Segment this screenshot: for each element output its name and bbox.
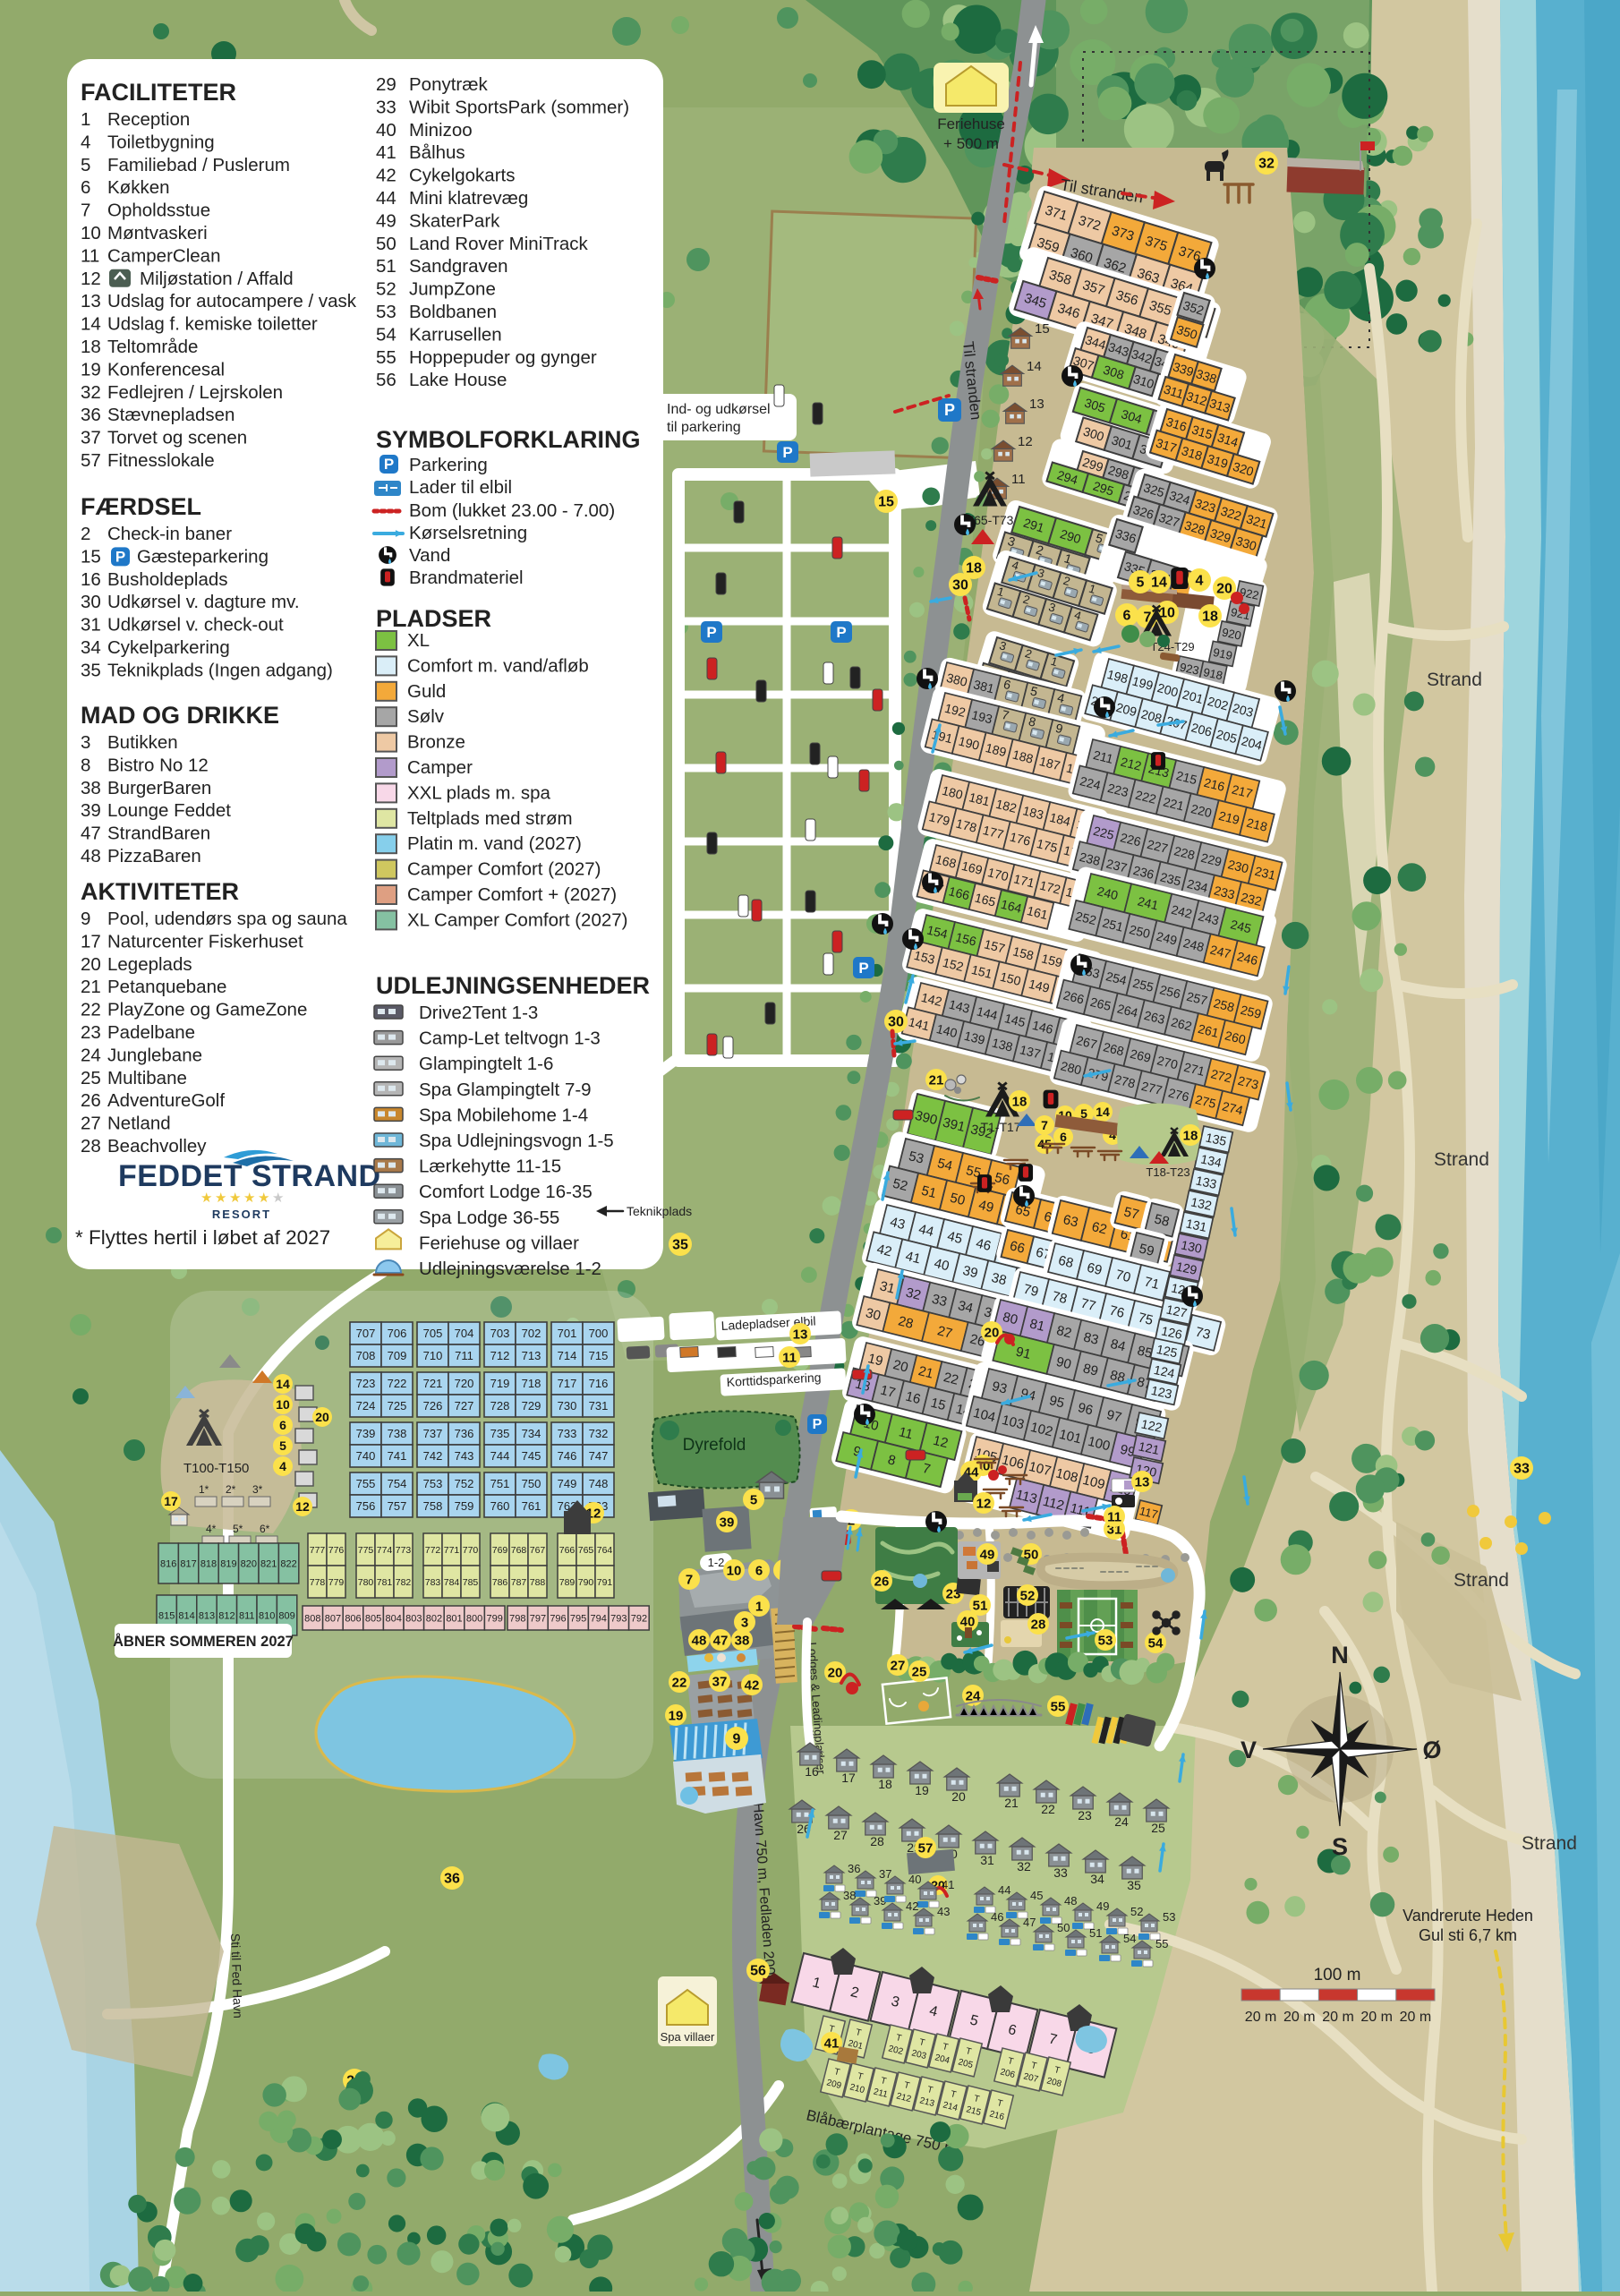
svg-text:18: 18	[966, 561, 982, 576]
svg-text:1: 1	[755, 1599, 763, 1614]
svg-text:744: 744	[490, 1449, 510, 1463]
svg-text:53: 53	[1163, 1910, 1175, 1924]
svg-text:754: 754	[388, 1477, 407, 1490]
svg-text:BurgerBaren: BurgerBaren	[107, 778, 211, 798]
svg-text:741: 741	[388, 1449, 407, 1463]
svg-text:54: 54	[1148, 1635, 1164, 1651]
svg-text:721: 721	[423, 1377, 443, 1390]
svg-text:701: 701	[558, 1327, 577, 1340]
svg-text:P: P	[384, 456, 394, 473]
svg-text:751: 751	[490, 1477, 510, 1490]
svg-text:821: 821	[260, 1558, 277, 1569]
svg-text:21: 21	[81, 977, 101, 997]
svg-text:SkaterPark: SkaterPark	[409, 210, 500, 231]
svg-text:Glampingtelt 1-6: Glampingtelt 1-6	[419, 1054, 553, 1074]
svg-text:39: 39	[720, 1515, 735, 1530]
svg-text:20 m: 20 m	[1283, 2010, 1316, 2025]
svg-text:Boldbanen: Boldbanen	[409, 302, 497, 322]
svg-text:34: 34	[1090, 1872, 1104, 1886]
svg-text:53: 53	[1098, 1633, 1113, 1648]
svg-text:805: 805	[365, 1613, 381, 1624]
svg-text:P: P	[813, 1417, 823, 1432]
svg-text:6: 6	[1060, 1130, 1067, 1144]
svg-text:Lærkehytte 11-15: Lærkehytte 11-15	[419, 1157, 561, 1177]
svg-text:733: 733	[558, 1427, 577, 1440]
svg-text:780: 780	[358, 1577, 374, 1588]
svg-text:Brandmateriel: Brandmateriel	[409, 568, 524, 588]
svg-text:745: 745	[522, 1449, 541, 1463]
svg-text:3*: 3*	[252, 1483, 263, 1496]
svg-text:P: P	[944, 401, 955, 419]
svg-text:Spa Glampingtelt 7-9: Spa Glampingtelt 7-9	[419, 1080, 592, 1100]
svg-text:713: 713	[522, 1349, 541, 1362]
svg-text:719: 719	[490, 1377, 510, 1390]
svg-text:786: 786	[492, 1577, 508, 1588]
svg-text:2*: 2*	[226, 1483, 236, 1496]
svg-text:★: ★	[243, 1191, 255, 1206]
svg-text:1: 1	[81, 109, 90, 130]
svg-text:29: 29	[376, 74, 396, 95]
svg-text:17: 17	[81, 931, 101, 952]
svg-text:774: 774	[377, 1545, 393, 1556]
svg-text:CamperClean: CamperClean	[107, 245, 220, 266]
svg-text:T100-T150: T100-T150	[183, 1461, 249, 1476]
svg-text:Strand: Strand	[1434, 1149, 1489, 1170]
svg-text:Opholdsstue: Opholdsstue	[107, 201, 210, 221]
svg-text:13: 13	[81, 291, 101, 312]
svg-text:772: 772	[425, 1545, 441, 1556]
svg-text:20 m: 20 m	[1400, 2010, 1432, 2025]
svg-text:770: 770	[463, 1545, 479, 1556]
svg-text:23: 23	[1078, 1808, 1092, 1822]
svg-text:765: 765	[578, 1545, 594, 1556]
svg-text:706: 706	[388, 1327, 407, 1340]
svg-text:766: 766	[559, 1545, 576, 1556]
svg-text:14: 14	[81, 314, 101, 335]
svg-text:Gul sti 6,7 km: Gul sti 6,7 km	[1419, 1926, 1517, 1944]
svg-text:T18-T23: T18-T23	[1146, 1165, 1189, 1179]
svg-text:759: 759	[455, 1499, 474, 1513]
svg-text:4: 4	[279, 1459, 286, 1473]
svg-text:P: P	[706, 624, 716, 641]
svg-text:8: 8	[81, 755, 90, 775]
svg-text:47: 47	[1023, 1916, 1036, 1929]
svg-text:724: 724	[356, 1399, 376, 1413]
svg-text:Beachvolley: Beachvolley	[107, 1136, 207, 1157]
svg-text:7: 7	[81, 201, 90, 221]
svg-text:48: 48	[81, 846, 101, 866]
svg-text:32: 32	[1258, 157, 1275, 172]
svg-text:Vand: Vand	[409, 545, 450, 566]
svg-text:5: 5	[279, 1438, 286, 1453]
svg-text:25: 25	[1151, 1821, 1165, 1835]
svg-text:725: 725	[388, 1399, 407, 1413]
svg-text:707: 707	[356, 1327, 376, 1340]
svg-text:★: ★	[200, 1191, 212, 1206]
svg-text:Multibane: Multibane	[107, 1068, 187, 1088]
svg-text:20: 20	[81, 954, 101, 975]
svg-text:48: 48	[1064, 1894, 1077, 1908]
svg-text:796: 796	[550, 1613, 566, 1624]
svg-text:30: 30	[81, 592, 101, 612]
svg-text:820: 820	[241, 1558, 257, 1569]
svg-text:38: 38	[735, 1633, 750, 1648]
svg-text:41: 41	[942, 1878, 954, 1891]
svg-text:771: 771	[444, 1545, 460, 1556]
svg-text:21: 21	[1004, 1796, 1019, 1810]
svg-text:720: 720	[455, 1377, 474, 1390]
svg-text:Naturcenter Fiskerhuset: Naturcenter Fiskerhuset	[107, 931, 303, 952]
svg-text:46: 46	[991, 1910, 1003, 1924]
svg-text:52: 52	[376, 279, 396, 300]
svg-text:35: 35	[1127, 1878, 1141, 1892]
svg-text:784: 784	[444, 1577, 460, 1588]
svg-text:13: 13	[793, 1327, 808, 1342]
svg-text:5*: 5*	[233, 1523, 243, 1535]
svg-text:Familiebad / Puslerum: Familiebad / Puslerum	[107, 155, 290, 175]
svg-text:783: 783	[425, 1577, 441, 1588]
svg-text:Bålhus: Bålhus	[409, 142, 465, 163]
svg-text:Udslag for autocampere / vask: Udslag for autocampere / vask	[107, 291, 357, 312]
svg-text:798: 798	[509, 1613, 525, 1624]
svg-text:795: 795	[570, 1613, 586, 1624]
svg-text:PizzaBaren: PizzaBaren	[107, 846, 201, 866]
svg-text:4: 4	[81, 132, 90, 152]
svg-text:Busholdeplads: Busholdeplads	[107, 569, 228, 590]
svg-text:709: 709	[388, 1349, 407, 1362]
svg-text:26: 26	[81, 1090, 101, 1111]
svg-text:Dyrefold: Dyrefold	[683, 1436, 746, 1455]
svg-text:14: 14	[276, 1377, 290, 1391]
svg-text:Parkering: Parkering	[409, 455, 488, 475]
svg-text:743: 743	[455, 1449, 474, 1463]
svg-text:11: 11	[1011, 472, 1026, 487]
svg-text:Camper Comfort (2027): Camper Comfort (2027)	[407, 859, 601, 880]
svg-text:4: 4	[1196, 574, 1204, 589]
svg-text:748: 748	[589, 1477, 609, 1490]
svg-text:P: P	[836, 624, 846, 641]
svg-text:26: 26	[874, 1574, 890, 1589]
svg-text:Teknikplads: Teknikplads	[627, 1204, 692, 1218]
svg-text:28: 28	[81, 1136, 101, 1157]
svg-text:764: 764	[597, 1545, 613, 1556]
svg-text:20: 20	[1216, 582, 1232, 597]
svg-text:Padelbane: Padelbane	[107, 1022, 195, 1043]
svg-text:2: 2	[81, 524, 90, 544]
svg-text:738: 738	[388, 1427, 407, 1440]
svg-text:49: 49	[980, 1547, 995, 1562]
svg-text:Pool, udendørs spa og sauna: Pool, udendørs spa og sauna	[107, 909, 347, 929]
svg-text:740: 740	[356, 1449, 376, 1463]
svg-text:40: 40	[908, 1873, 921, 1886]
svg-text:N: N	[1331, 1642, 1349, 1669]
svg-text:Legeplads: Legeplads	[107, 954, 192, 975]
svg-text:803: 803	[405, 1613, 422, 1624]
svg-text:Platin m. vand (2027): Platin m. vand (2027)	[407, 833, 582, 854]
svg-text:39: 39	[81, 800, 101, 821]
svg-text:XL Camper Comfort (2027): XL Camper Comfort (2027)	[407, 909, 627, 930]
svg-text:3: 3	[81, 732, 90, 753]
svg-text:50: 50	[1057, 1921, 1070, 1934]
svg-text:JumpZone: JumpZone	[409, 279, 496, 300]
svg-text:Feriehuse og villaer: Feriehuse og villaer	[419, 1233, 579, 1253]
svg-text:51: 51	[973, 1598, 988, 1613]
svg-text:779: 779	[328, 1577, 345, 1588]
svg-text:702: 702	[522, 1327, 541, 1340]
svg-text:Butikken: Butikken	[107, 732, 178, 753]
svg-text:791: 791	[597, 1577, 613, 1588]
svg-text:RESORT: RESORT	[212, 1208, 271, 1221]
svg-text:776: 776	[328, 1545, 345, 1556]
svg-text:6: 6	[279, 1418, 286, 1432]
svg-text:767: 767	[530, 1545, 546, 1556]
svg-text:49: 49	[1096, 1899, 1109, 1913]
svg-text:57: 57	[81, 450, 101, 471]
svg-text:28: 28	[1031, 1617, 1046, 1632]
svg-text:50: 50	[376, 234, 396, 254]
svg-text:6: 6	[81, 177, 90, 198]
svg-text:Udkørsel v. check-out: Udkørsel v. check-out	[107, 615, 284, 636]
svg-text:FÆRDSEL: FÆRDSEL	[81, 493, 201, 520]
svg-text:20: 20	[828, 1665, 843, 1680]
svg-text:Bronze: Bronze	[407, 732, 465, 753]
svg-text:19: 19	[669, 1708, 684, 1723]
svg-text:760: 760	[490, 1499, 510, 1513]
svg-text:808: 808	[304, 1613, 320, 1624]
svg-text:Bistro No 12: Bistro No 12	[107, 755, 209, 775]
svg-text:742: 742	[423, 1449, 443, 1463]
svg-text:41: 41	[824, 2036, 840, 2051]
svg-text:Sølv: Sølv	[407, 706, 445, 727]
svg-text:24: 24	[1114, 1814, 1129, 1829]
svg-text:17: 17	[841, 1771, 856, 1785]
svg-text:Camper Comfort + (2027): Camper Comfort + (2027)	[407, 884, 617, 905]
svg-text:7: 7	[686, 1572, 693, 1587]
svg-text:30: 30	[952, 578, 968, 593]
svg-text:731: 731	[589, 1399, 609, 1413]
svg-text:27: 27	[833, 1828, 848, 1842]
svg-text:20 m: 20 m	[1245, 2010, 1277, 2025]
svg-text:Gæsteparkering: Gæsteparkering	[137, 546, 269, 567]
svg-text:775: 775	[358, 1545, 374, 1556]
svg-text:818: 818	[200, 1558, 217, 1569]
svg-text:6*: 6*	[260, 1523, 270, 1535]
svg-text:12: 12	[1018, 434, 1033, 449]
svg-text:Feriehuse: Feriehuse	[937, 115, 1005, 132]
svg-text:Kørselsretning: Kørselsretning	[409, 523, 527, 543]
svg-text:Hoppepuder og gynger: Hoppepuder og gynger	[409, 347, 597, 368]
svg-text:12: 12	[976, 1496, 992, 1511]
svg-text:Fitnesslokale: Fitnesslokale	[107, 450, 215, 471]
svg-text:45: 45	[1030, 1889, 1043, 1902]
svg-text:55: 55	[376, 347, 396, 368]
svg-text:52: 52	[1130, 1905, 1143, 1918]
svg-text:42: 42	[376, 166, 396, 186]
svg-text:42: 42	[906, 1899, 918, 1913]
svg-text:756: 756	[356, 1499, 376, 1513]
svg-text:10: 10	[81, 223, 101, 243]
svg-text:716: 716	[589, 1377, 609, 1390]
svg-text:XL: XL	[407, 630, 430, 651]
svg-text:752: 752	[455, 1477, 474, 1490]
svg-text:43: 43	[937, 1905, 950, 1918]
svg-text:Karrusellen: Karrusellen	[409, 324, 502, 345]
svg-text:712: 712	[490, 1349, 510, 1362]
svg-text:FACILITETER: FACILITETER	[81, 79, 236, 106]
svg-text:Køkken: Køkken	[107, 177, 170, 198]
svg-text:781: 781	[377, 1577, 393, 1588]
svg-text:Wibit SportsPark (sommer): Wibit SportsPark (sommer)	[409, 97, 629, 117]
svg-text:793: 793	[610, 1613, 627, 1624]
svg-text:Minizoo: Minizoo	[409, 120, 473, 141]
svg-text:718: 718	[522, 1377, 541, 1390]
svg-text:35: 35	[81, 660, 101, 680]
svg-text:6: 6	[755, 1563, 763, 1578]
svg-text:Comfort m. vand/afløb: Comfort m. vand/afløb	[407, 655, 589, 676]
svg-text:57: 57	[918, 1840, 934, 1856]
svg-text:710: 710	[423, 1349, 443, 1362]
svg-text:Junglebane: Junglebane	[107, 1045, 202, 1065]
svg-text:37: 37	[879, 1867, 891, 1881]
svg-text:22: 22	[672, 1675, 687, 1690]
svg-text:100 m: 100 m	[1314, 1966, 1361, 1984]
svg-text:700: 700	[589, 1327, 609, 1340]
svg-text:51: 51	[1089, 1926, 1102, 1940]
svg-text:747: 747	[589, 1449, 609, 1463]
svg-text:12: 12	[81, 269, 101, 289]
svg-text:25: 25	[912, 1664, 927, 1679]
svg-text:Mini klatrevæg: Mini klatrevæg	[409, 188, 528, 209]
svg-text:35: 35	[672, 1238, 688, 1253]
svg-text:20: 20	[315, 1410, 329, 1424]
svg-text:★: ★	[272, 1191, 284, 1206]
svg-text:32: 32	[1017, 1859, 1031, 1874]
svg-text:769: 769	[492, 1545, 508, 1556]
svg-text:14: 14	[1096, 1105, 1110, 1119]
svg-text:739: 739	[356, 1427, 376, 1440]
svg-text:13: 13	[1135, 1474, 1150, 1489]
svg-text:788: 788	[530, 1577, 546, 1588]
svg-text:Ø: Ø	[1422, 1737, 1441, 1763]
svg-text:Spa villaer: Spa villaer	[661, 2030, 715, 2044]
svg-text:730: 730	[558, 1399, 577, 1413]
svg-text:27: 27	[891, 1658, 906, 1673]
svg-text:10: 10	[276, 1397, 290, 1412]
svg-text:735: 735	[490, 1427, 510, 1440]
svg-text:MAD OG DRIKKE: MAD OG DRIKKE	[81, 702, 279, 729]
svg-text:Spa Lodge 36-55: Spa Lodge 36-55	[419, 1208, 559, 1228]
svg-text:789: 789	[559, 1577, 576, 1588]
svg-text:56: 56	[376, 370, 396, 390]
svg-text:Strand: Strand	[1427, 670, 1482, 690]
svg-text:47: 47	[81, 824, 101, 844]
svg-text:ÅBNER SOMMEREN 2027: ÅBNER SOMMEREN 2027	[113, 1633, 294, 1650]
svg-text:31: 31	[81, 615, 101, 636]
svg-text:819: 819	[220, 1558, 236, 1569]
svg-text:714: 714	[558, 1349, 577, 1362]
svg-text:722: 722	[388, 1377, 407, 1390]
svg-text:Spa Mobilehome 1-4: Spa Mobilehome 1-4	[419, 1105, 588, 1125]
svg-text:723: 723	[356, 1377, 376, 1390]
svg-text:P: P	[782, 444, 792, 461]
svg-text:773: 773	[396, 1545, 412, 1556]
svg-text:815: 815	[158, 1610, 175, 1621]
svg-text:Miljøstation / Affald: Miljøstation / Affald	[140, 269, 294, 289]
svg-text:Teknikplads (Ingen adgang): Teknikplads (Ingen adgang)	[107, 660, 333, 680]
svg-text:T24-T29: T24-T29	[1150, 640, 1194, 653]
svg-text:753: 753	[423, 1477, 443, 1490]
svg-text:11: 11	[782, 1350, 797, 1365]
svg-text:28: 28	[870, 1834, 884, 1848]
svg-text:36: 36	[81, 405, 101, 425]
svg-text:807: 807	[325, 1613, 341, 1624]
svg-text:Camper: Camper	[407, 757, 473, 778]
svg-text:758: 758	[423, 1499, 443, 1513]
svg-text:38: 38	[81, 778, 101, 798]
svg-text:Torvet og scenen: Torvet og scenen	[107, 428, 247, 448]
svg-text:797: 797	[530, 1613, 546, 1624]
svg-text:787: 787	[511, 1577, 527, 1588]
svg-text:PlayZone og GameZone: PlayZone og GameZone	[107, 1000, 307, 1020]
svg-text:54: 54	[376, 324, 396, 345]
svg-text:761: 761	[522, 1499, 541, 1513]
svg-text:13: 13	[1029, 397, 1044, 412]
svg-text:717: 717	[558, 1377, 577, 1390]
svg-text:AKTIVITETER: AKTIVITETER	[81, 878, 239, 905]
svg-text:30: 30	[888, 1015, 904, 1030]
svg-text:18: 18	[1183, 1128, 1198, 1143]
svg-text:794: 794	[591, 1613, 607, 1624]
svg-text:Sti til Fed Havn: Sti til Fed Havn	[228, 1933, 245, 2019]
svg-text:42: 42	[745, 1677, 760, 1693]
svg-text:816: 816	[160, 1558, 176, 1569]
svg-text:19: 19	[81, 359, 101, 380]
svg-text:727: 727	[455, 1399, 474, 1413]
svg-text:Camp-Let teltvogn 1-3: Camp-Let teltvogn 1-3	[419, 1029, 601, 1049]
svg-text:23: 23	[81, 1022, 101, 1043]
svg-text:49: 49	[376, 210, 396, 231]
svg-text:708: 708	[356, 1349, 376, 1362]
svg-text:17: 17	[164, 1494, 178, 1508]
svg-text:33: 33	[1053, 1865, 1068, 1880]
svg-text:768: 768	[511, 1545, 527, 1556]
svg-text:728: 728	[490, 1399, 510, 1413]
svg-text:Lader til elbil: Lader til elbil	[409, 477, 512, 498]
svg-text:Strand: Strand	[1454, 1570, 1509, 1591]
svg-text:51: 51	[376, 256, 396, 277]
svg-text:Check-in baner: Check-in baner	[107, 524, 232, 544]
svg-text:20 m: 20 m	[1360, 2010, 1393, 2025]
svg-text:20: 20	[951, 1789, 966, 1804]
svg-text:746: 746	[558, 1449, 577, 1463]
svg-text:812: 812	[218, 1610, 234, 1621]
svg-text:14: 14	[1151, 576, 1167, 591]
svg-text:37: 37	[712, 1674, 728, 1689]
svg-text:14: 14	[1027, 359, 1042, 374]
svg-text:703: 703	[490, 1327, 510, 1340]
svg-text:55: 55	[1051, 1699, 1066, 1714]
svg-text:★: ★	[229, 1191, 241, 1206]
svg-text:18: 18	[878, 1777, 892, 1791]
svg-text:47: 47	[713, 1633, 729, 1648]
svg-text:16: 16	[805, 1764, 819, 1779]
svg-text:792: 792	[631, 1613, 647, 1624]
svg-text:Strand: Strand	[1522, 1833, 1577, 1854]
svg-text:22: 22	[81, 1000, 101, 1020]
svg-text:11: 11	[81, 245, 99, 266]
svg-text:AdventureGolf: AdventureGolf	[107, 1090, 225, 1111]
svg-text:Udlejningsværelse 1-2: Udlejningsværelse 1-2	[419, 1259, 601, 1279]
